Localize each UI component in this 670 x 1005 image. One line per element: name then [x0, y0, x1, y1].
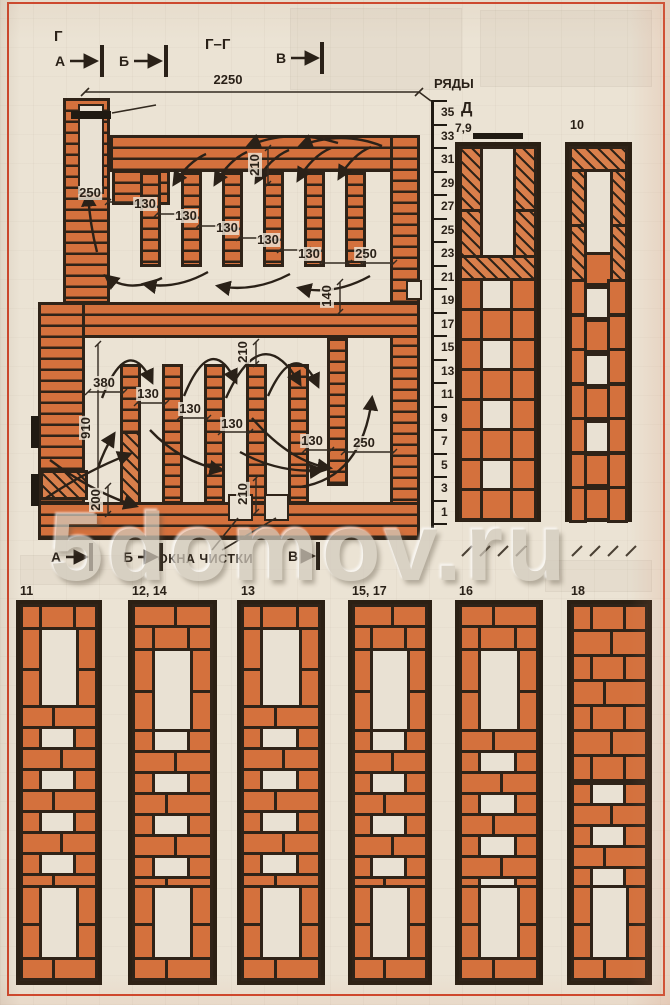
rows-scale-tick — [431, 406, 447, 408]
course-plan-label: 16 — [459, 584, 473, 598]
course-plan-label: 12, 14 — [132, 584, 167, 598]
rows-scale-tick — [431, 241, 447, 243]
dimension-label: 250 — [352, 436, 376, 450]
corner-label: Г — [54, 28, 63, 45]
dimension-label: 250 — [78, 186, 102, 200]
course-plan-label: 13 — [241, 584, 255, 598]
course-plan-label: 18 — [571, 584, 585, 598]
dimension-label: 130 — [215, 221, 239, 235]
course-plan-label: 15, 17 — [352, 584, 387, 598]
rows-scale-tick — [431, 500, 447, 502]
section-marker-letter: В — [276, 50, 286, 66]
dimension-label: 2250 — [213, 73, 244, 87]
rows-scale-tick — [431, 476, 447, 478]
dimension-label: 200 — [89, 488, 103, 512]
dimension-label: 380 — [92, 376, 116, 390]
row-number: 29 — [441, 176, 454, 190]
row-number: 35 — [441, 105, 454, 119]
rows-scale-tick — [431, 429, 447, 431]
row-number: 31 — [441, 152, 454, 166]
dimension-label: 130 — [300, 434, 324, 448]
dimension-label: 910 — [79, 416, 93, 440]
dimension-label: 130 — [178, 402, 202, 416]
dimension-label: 130 — [297, 247, 321, 261]
dimension-label: 210 — [236, 340, 250, 364]
rows-scale-line — [431, 100, 434, 528]
dimension-label: 130 — [256, 233, 280, 247]
row-number: 13 — [441, 364, 454, 378]
dimension-label: 250 — [354, 247, 378, 261]
section-marker-letter: А — [51, 549, 61, 565]
dimension-label: 130 — [136, 387, 160, 401]
row-number: 19 — [441, 293, 454, 307]
dimension-label: 140 — [320, 284, 334, 308]
row-number: 25 — [441, 223, 454, 237]
course-plan-label: 11 — [20, 584, 33, 598]
rows-scale-tick — [431, 218, 447, 220]
row-number: 23 — [441, 246, 454, 260]
row-number: 15 — [441, 340, 454, 354]
dimension-label: 130 — [174, 209, 198, 223]
section-marker-letter: Б — [119, 53, 129, 69]
plan-d-label: Д — [461, 100, 472, 118]
row-number: 1 — [441, 505, 448, 519]
rows-scale-tick — [431, 312, 447, 314]
dimension-label: 130 — [220, 417, 244, 431]
section-marker-letter: В — [288, 548, 298, 564]
row-number: 3 — [441, 481, 448, 495]
rows-scale-title: РЯДЫ — [434, 76, 474, 91]
plan-d-rows-label: 7,9 — [455, 121, 472, 135]
row-number: 9 — [441, 411, 448, 425]
dimension-label: 130 — [133, 197, 157, 211]
scanned-stove-diagram-page: Г Г–Г РЯДЫ ОКНА ЧИСТКИ Д 7,9 10 5domov.r… — [0, 0, 670, 1005]
dimension-label: 210 — [236, 482, 250, 506]
row-number: 11 — [441, 387, 454, 401]
rows-scale-tick — [431, 194, 447, 196]
rows-scale-tick — [431, 100, 447, 102]
section-title: Г–Г — [205, 36, 230, 53]
dimension-label: 210 — [248, 153, 262, 177]
rows-scale-tick — [431, 147, 447, 149]
row-number: 17 — [441, 317, 454, 331]
dimension-lines — [85, 145, 397, 517]
row-number: 7 — [441, 434, 448, 448]
rows-scale-tick — [431, 523, 447, 525]
ground-hatch — [462, 546, 636, 556]
rows-scale-tick — [431, 335, 447, 337]
plan-10-label: 10 — [570, 118, 584, 132]
section-markers — [66, 42, 322, 571]
rows-scale-tick — [431, 265, 447, 267]
rows-scale-tick — [431, 382, 447, 384]
section-marker-letter: А — [55, 53, 65, 69]
row-number: 21 — [441, 270, 454, 284]
rows-scale-tick — [431, 171, 447, 173]
section-marker-letter: Б — [123, 549, 133, 565]
cleaning-windows-label: ОКНА ЧИСТКИ — [158, 552, 253, 566]
row-number: 5 — [441, 458, 448, 472]
rows-scale-tick — [431, 453, 447, 455]
row-number: 33 — [441, 129, 454, 143]
row-number: 27 — [441, 199, 454, 213]
rows-scale-tick — [431, 288, 447, 290]
rows-scale-tick — [431, 124, 447, 126]
rows-scale-tick — [431, 359, 447, 361]
